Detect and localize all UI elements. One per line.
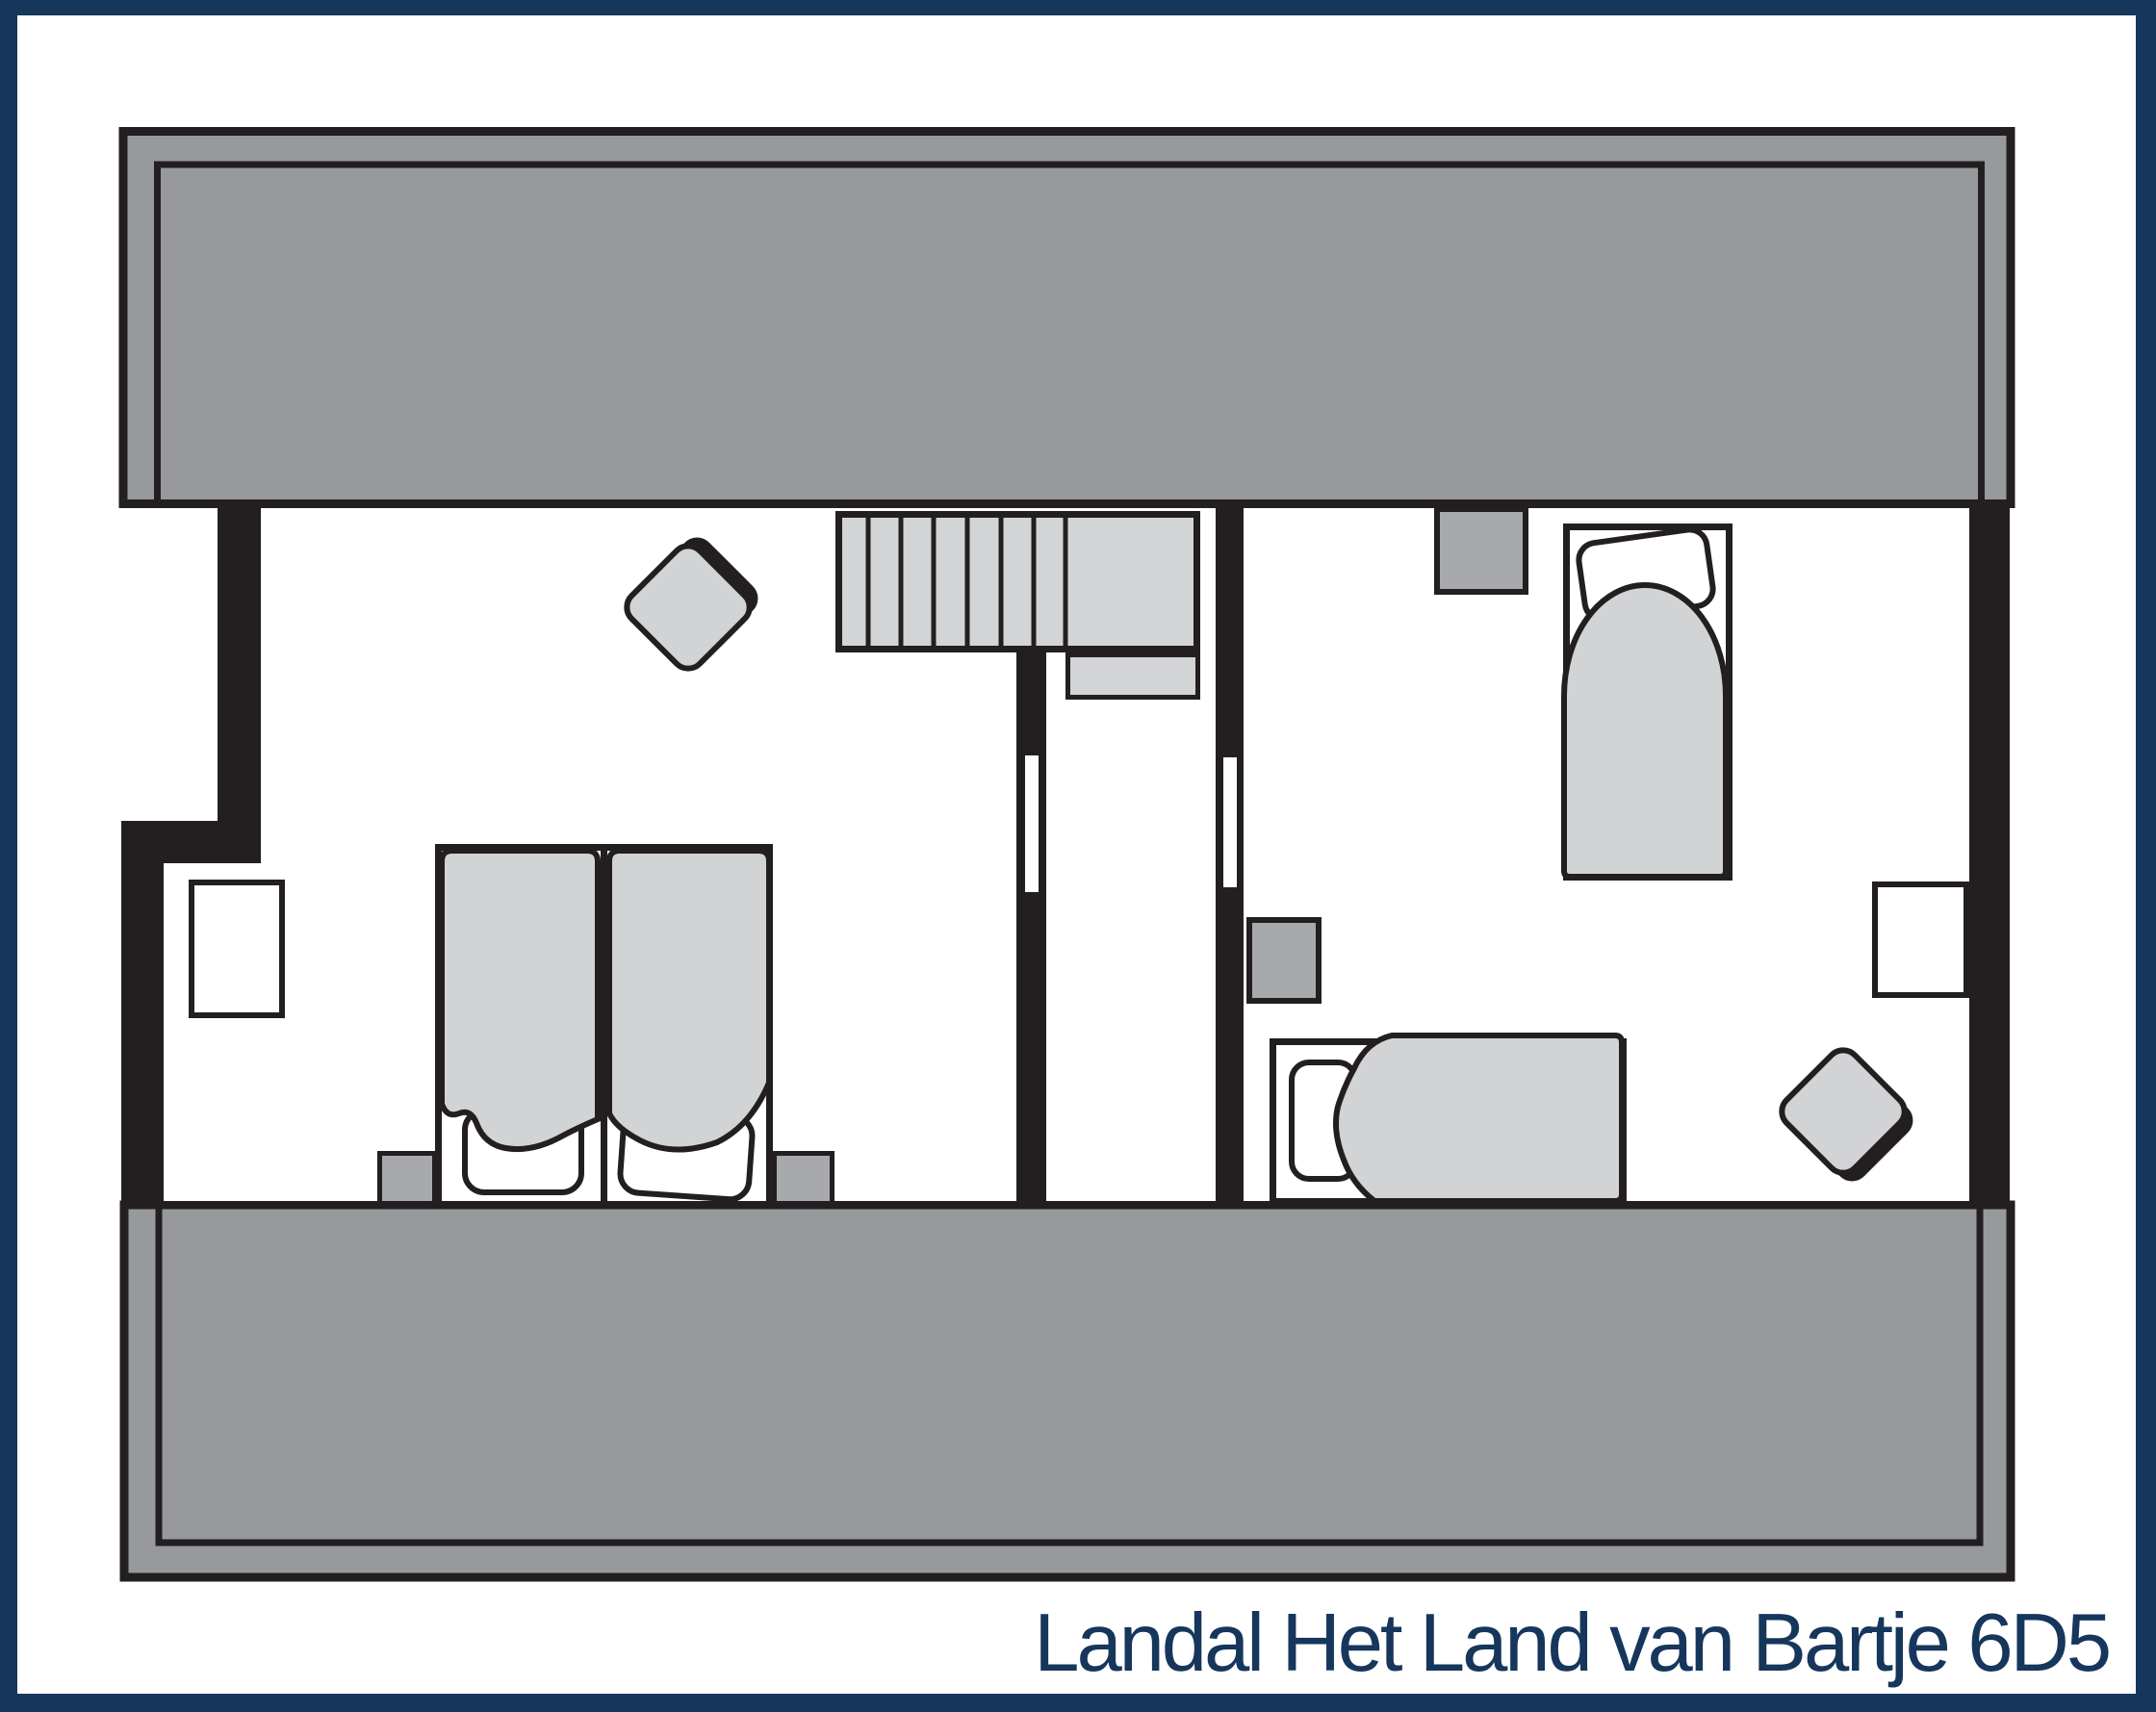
svg-text:Landal Het Land van Bartje 6D5: Landal Het Land van Bartje 6D5 xyxy=(1034,1597,2109,1689)
